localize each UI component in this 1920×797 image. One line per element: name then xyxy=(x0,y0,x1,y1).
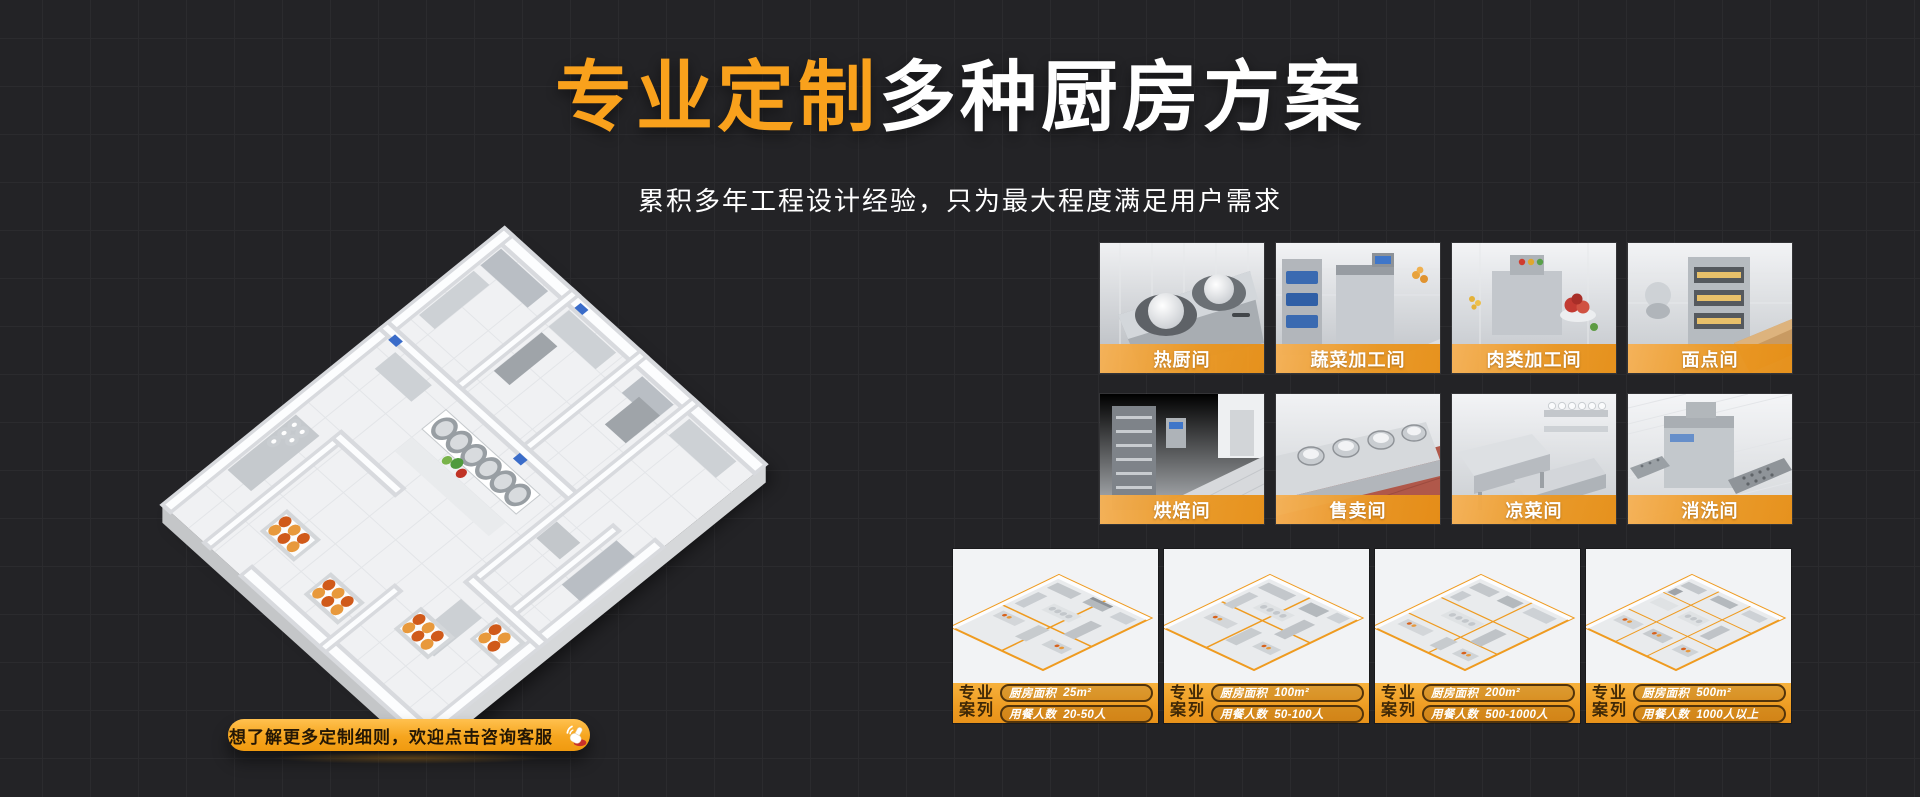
case-diners: 用餐人数 500-1000人 xyxy=(1422,705,1575,723)
case-info-bar: 专业 案列 厨房面积 500m² 用餐人数 1000人以上 xyxy=(1586,683,1791,723)
kitchen-floorplan-illustration xyxy=(112,208,796,746)
mini-floorplan-illustration xyxy=(1164,549,1369,683)
case-diners: 用餐人数 20-50人 xyxy=(1000,705,1153,723)
case-card-25m2[interactable]: 专业 案列 厨房面积 25m² 用餐人数 20-50人 xyxy=(953,549,1158,723)
mini-floorplan-illustration xyxy=(1375,549,1580,683)
case-badge: 专业 案列 xyxy=(1381,686,1417,720)
case-diners: 用餐人数 1000人以上 xyxy=(1633,705,1786,723)
case-badge: 专业 案列 xyxy=(959,686,995,720)
case-list: 专业 案列 厨房面积 25m² 用餐人数 20-50人 xyxy=(953,549,1791,723)
tile-hot-kitchen[interactable]: 热厨间 xyxy=(1100,243,1264,373)
case-card-200m2[interactable]: 专业 案列 厨房面积 200m² 用餐人数 500-1000人 xyxy=(1375,549,1580,723)
tile-label: 售卖间 xyxy=(1330,497,1387,523)
tile-label-bar: 面点间 xyxy=(1628,344,1792,373)
tile-label: 凉菜间 xyxy=(1506,497,1563,523)
title-highlight: 专业定制 xyxy=(555,55,879,141)
tile-label: 面点间 xyxy=(1682,346,1739,372)
case-area: 厨房面积 500m² xyxy=(1633,684,1786,702)
consult-service-label: 想了解更多定制细则，欢迎点击咨询客服 xyxy=(229,723,553,748)
case-badge: 专业 案列 xyxy=(1592,686,1628,720)
kitchen-banner: 专业定制多种厨房方案 累积多年工程设计经验，只为最大程度满足用户需求 xyxy=(0,0,1920,797)
case-info-bar: 专业 案列 厨房面积 200m² 用餐人数 500-1000人 xyxy=(1375,683,1580,723)
mini-floorplan-illustration xyxy=(953,549,1158,683)
tile-label-bar: 热厨间 xyxy=(1100,344,1264,373)
case-info-bar: 专业 案列 厨房面积 100m² 用餐人数 50-100人 xyxy=(1164,683,1369,723)
tile-label-bar: 蔬菜加工间 xyxy=(1276,344,1440,373)
tile-label: 蔬菜加工间 xyxy=(1311,346,1406,372)
case-card-100m2[interactable]: 专业 案列 厨房面积 100m² 用餐人数 50-100人 xyxy=(1164,549,1369,723)
tile-label: 肉类加工间 xyxy=(1487,346,1582,372)
room-gallery: 热厨间 蔬菜加工间 xyxy=(1100,243,1792,524)
tile-label: 消洗间 xyxy=(1682,497,1739,523)
case-badge: 专业 案列 xyxy=(1170,686,1206,720)
case-area: 厨房面积 25m² xyxy=(1000,684,1153,702)
tile-label-bar: 肉类加工间 xyxy=(1452,344,1616,373)
tile-baking-room[interactable]: 烘焙间 xyxy=(1100,394,1264,524)
mini-floorplan-illustration xyxy=(1586,549,1791,683)
case-diners: 用餐人数 50-100人 xyxy=(1211,705,1364,723)
case-info-bar: 专业 案列 厨房面积 25m² 用餐人数 20-50人 xyxy=(953,683,1158,723)
title-rest: 多种厨房方案 xyxy=(879,55,1365,141)
tile-label-bar: 凉菜间 xyxy=(1452,495,1616,524)
tile-label: 烘焙间 xyxy=(1154,497,1211,523)
tile-pastry-room[interactable]: 面点间 xyxy=(1628,243,1792,373)
tile-sales-room[interactable]: 售卖间 xyxy=(1276,394,1440,524)
tile-vegetable-processing[interactable]: 蔬菜加工间 xyxy=(1276,243,1440,373)
tile-washing-room[interactable]: 消洗间 xyxy=(1628,394,1792,524)
case-area: 厨房面积 100m² xyxy=(1211,684,1364,702)
consult-service-button[interactable]: 想了解更多定制细则，欢迎点击咨询客服 xyxy=(228,719,590,751)
tile-label-bar: 消洗间 xyxy=(1628,495,1792,524)
case-card-500m2[interactable]: 专业 案列 厨房面积 500m² 用餐人数 1000人以上 xyxy=(1586,549,1791,723)
tile-label-bar: 烘焙间 xyxy=(1100,495,1264,524)
page-title: 专业定制多种厨房方案 xyxy=(0,58,1920,139)
tile-label: 热厨间 xyxy=(1154,346,1211,372)
tile-meat-processing[interactable]: 肉类加工间 xyxy=(1452,243,1616,373)
tile-label-bar: 售卖间 xyxy=(1276,495,1440,524)
click-hand-icon xyxy=(562,722,589,749)
case-area: 厨房面积 200m² xyxy=(1422,684,1575,702)
tile-cold-dish-room[interactable]: 凉菜间 xyxy=(1452,394,1616,524)
